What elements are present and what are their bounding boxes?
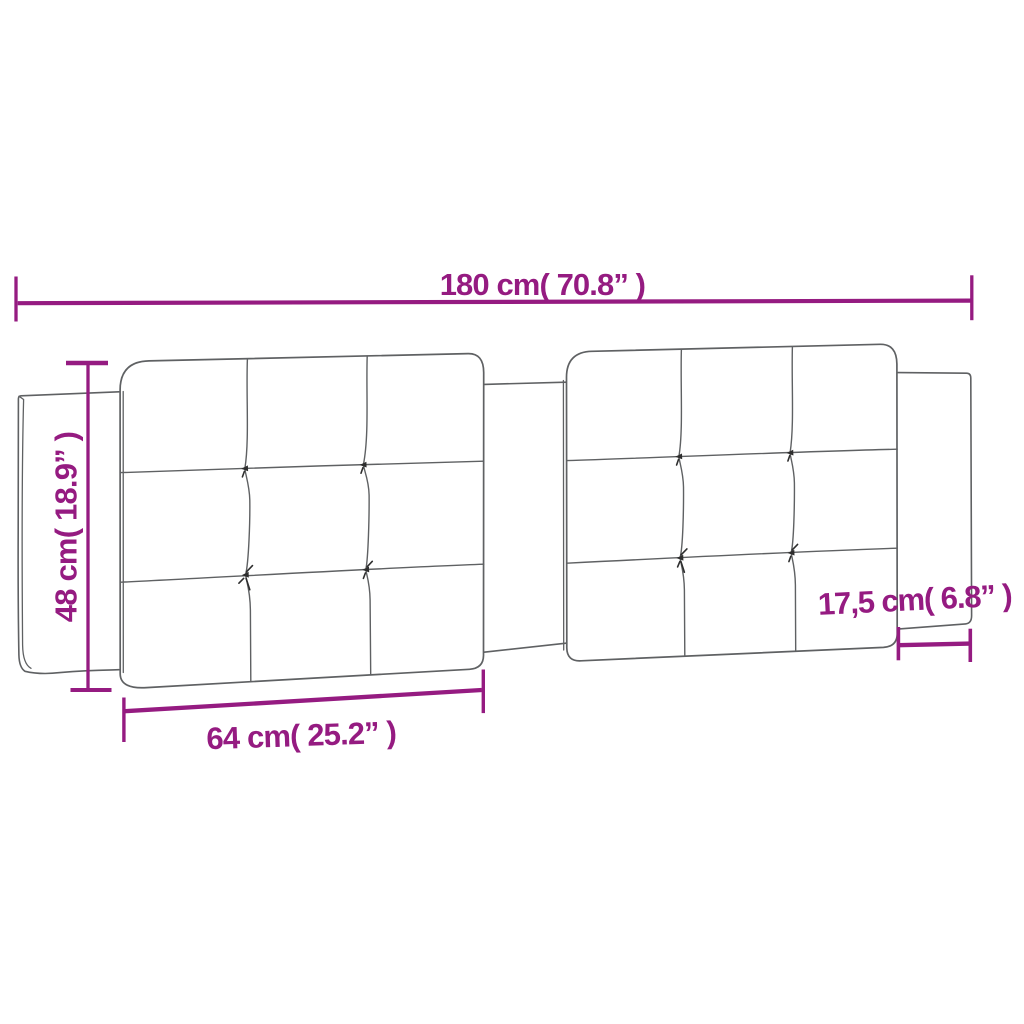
- svg-text:64 cm( 25.2” ): 64 cm( 25.2” ): [206, 715, 397, 757]
- svg-text:180 cm( 70.8” ): 180 cm( 70.8” ): [440, 267, 645, 302]
- svg-text:48 cm( 18.9” ): 48 cm( 18.9” ): [49, 432, 84, 622]
